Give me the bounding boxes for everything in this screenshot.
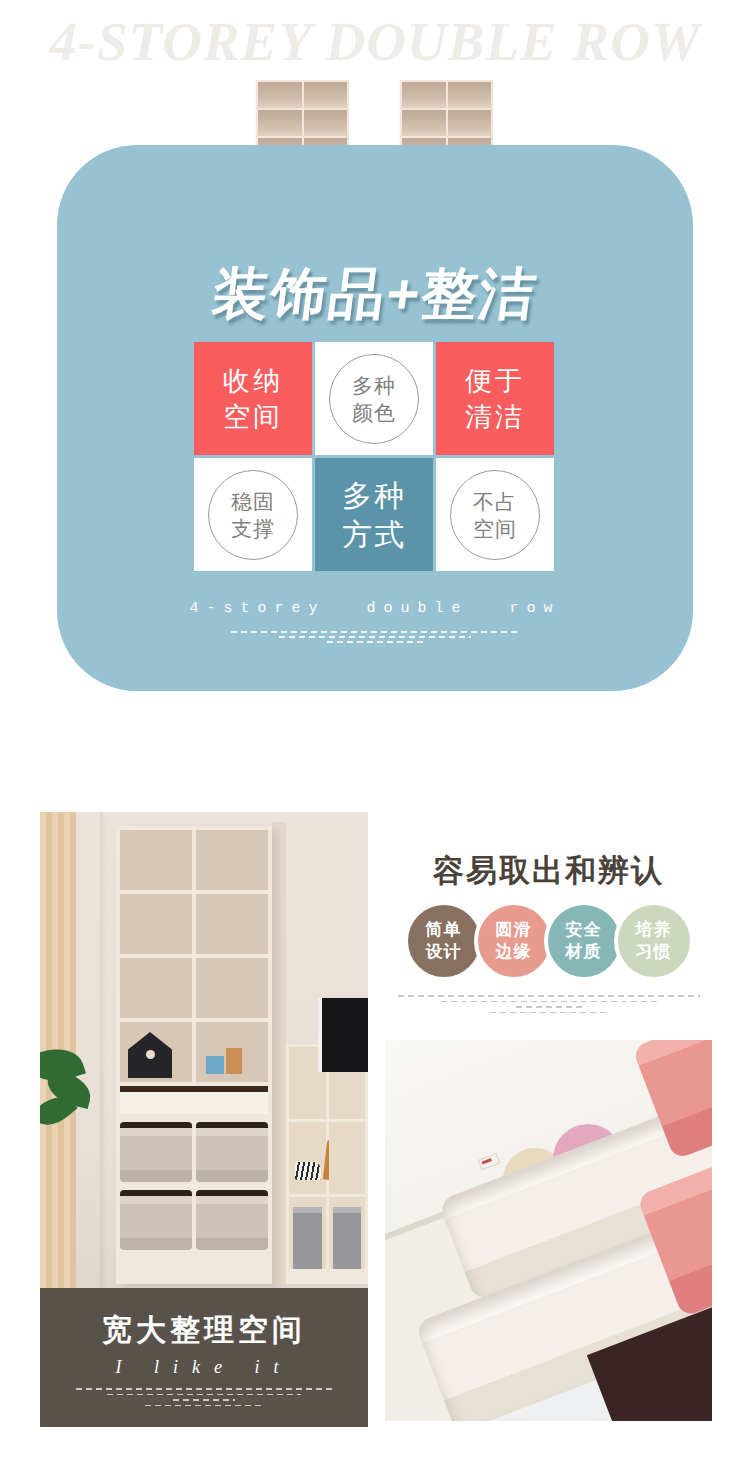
toy-zebra (295, 1162, 321, 1180)
badge-build-habit: 培养习惯 (614, 901, 694, 981)
product-detail-page: 4-STOREY DOUBLE ROW 装饰品+整洁 收纳空间 (0, 0, 750, 1480)
feature-card-title: 装饰品+整洁 (52, 257, 697, 333)
feature-grid: 收纳空间 多种颜色 便于清洁 稳固支撑 多种方式 不占空间 (194, 342, 554, 571)
feature-tile-storage: 收纳空间 (194, 342, 312, 455)
drawer-closeup-photo (385, 1040, 712, 1421)
room-photo: 宽大整理空间 I like it (40, 812, 368, 1427)
circle-outline-icon: 不占空间 (450, 470, 540, 560)
caption-overlay: 宽大整理空间 I like it (40, 1288, 368, 1427)
shelf-tray (120, 1086, 268, 1114)
shelf-side-panel (272, 822, 286, 1284)
decorative-dashes (40, 1388, 368, 1406)
card-footer-text: 4-storey double row (57, 600, 693, 617)
caption-title: 宽大整理空间 (40, 1310, 368, 1351)
room-shelf (116, 826, 272, 1284)
fabric-box (293, 1207, 322, 1269)
fabric-box (333, 1207, 362, 1269)
benefit-badges: 简单设计 圆滑边缘 安全材质 培养习惯 (385, 901, 712, 981)
feature-tile-colors: 多种颜色 (315, 342, 433, 455)
badge-simple-design: 简单设计 (404, 901, 484, 981)
page-title: 4-STOREY DOUBLE ROW (0, 10, 750, 73)
circle-outline-icon: 稳固支撑 (208, 470, 298, 560)
feature-tile-stable: 稳固支撑 (194, 458, 312, 571)
circle-outline-icon: 多种颜色 (329, 354, 419, 444)
cube-shelf (286, 1044, 368, 1284)
caption-subtitle: I like it (40, 1357, 368, 1378)
feature-tile-space: 不占空间 (436, 458, 554, 571)
section-title: 容易取出和辨认 (385, 850, 712, 892)
feature-card: 装饰品+整洁 收纳空间 多种颜色 便于清洁 稳固支撑 多种方式 (57, 145, 693, 691)
decorative-dashes (385, 991, 712, 1013)
tv-screen (318, 998, 368, 1072)
feature-tile-clean: 便于清洁 (436, 342, 554, 455)
toy-block (226, 1048, 242, 1074)
toy-house-box (128, 1032, 172, 1078)
badge-rounded-edges: 圆滑边缘 (474, 901, 554, 981)
decorative-dashes (57, 628, 693, 643)
badge-safe-material: 安全材质 (544, 901, 624, 981)
toy-block (206, 1056, 224, 1074)
feature-tile-ways: 多种方式 (315, 458, 433, 571)
